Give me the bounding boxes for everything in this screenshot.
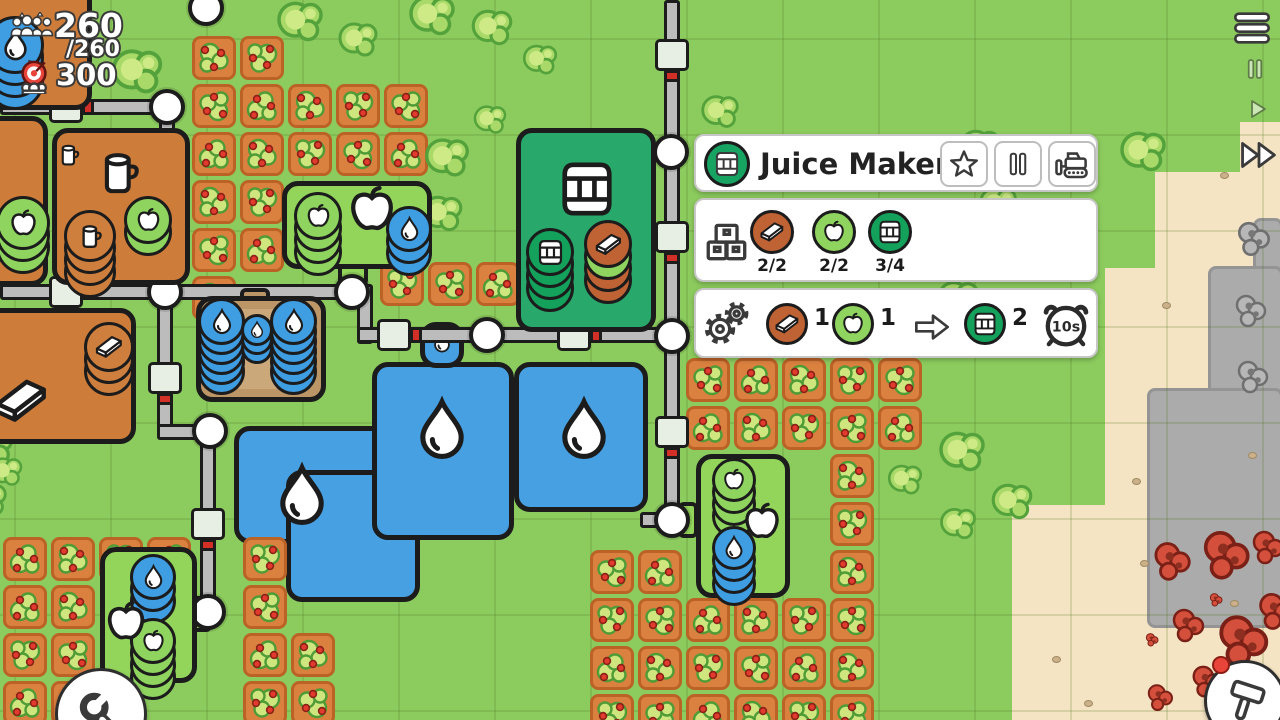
pebble — [1230, 600, 1239, 607]
rock-deposit — [1233, 358, 1273, 398]
orchard-tile — [291, 633, 335, 677]
orchard-tile — [243, 585, 287, 629]
pause-speed-button[interactable] — [1242, 56, 1268, 82]
barrel-icon — [554, 156, 620, 222]
pipe-node[interactable] — [654, 318, 690, 354]
orchard-tile — [830, 550, 874, 594]
pipe-connector[interactable] — [377, 319, 411, 351]
orchard-tile — [51, 585, 95, 629]
resource-stack-apple — [124, 196, 172, 244]
orchard-tile — [830, 358, 874, 402]
orchard-tile — [878, 358, 922, 402]
orchard-tile — [288, 132, 332, 176]
orchard-tile — [782, 406, 826, 450]
barrel-output-qty: 2 — [1012, 305, 1028, 331]
orchard-tile — [3, 537, 47, 581]
gears-icon — [702, 299, 750, 347]
resource-stack-plank — [584, 220, 632, 268]
rock-deposit — [1233, 219, 1275, 261]
apple-icon — [342, 180, 402, 240]
orchard-tile — [240, 84, 284, 128]
crates-icon — [702, 216, 752, 266]
orchard-tile — [428, 262, 472, 306]
target-icon — [16, 58, 52, 94]
bush — [934, 424, 990, 480]
plank-input-icon — [766, 303, 808, 345]
apple-icon — [738, 498, 786, 546]
orchard-tile — [734, 358, 778, 402]
ore-deposit — [1254, 590, 1280, 634]
valve-indicator — [157, 393, 173, 405]
valve-indicator — [664, 447, 680, 459]
orchard-tile — [243, 537, 287, 581]
orchard-tile — [192, 36, 236, 80]
orchard-tile — [638, 694, 682, 720]
menu-button[interactable] — [1232, 8, 1272, 48]
arrow-right-icon — [912, 307, 952, 347]
pipe-node[interactable] — [188, 0, 224, 26]
demolish-button[interactable] — [1048, 141, 1096, 187]
pebble — [1220, 172, 1229, 179]
panel-recipe: 1 1 2 10s — [694, 288, 1098, 358]
population-icon — [10, 12, 56, 42]
pebble — [1248, 452, 1257, 459]
fast-forward-button[interactable] — [1238, 134, 1280, 176]
apple-input-icon — [832, 303, 874, 345]
pipe-node[interactable] — [654, 502, 690, 538]
bush — [467, 3, 517, 53]
valve-indicator — [200, 539, 216, 551]
orchard-tile — [384, 84, 428, 128]
pipe-node[interactable] — [149, 89, 185, 125]
orchard-tile — [638, 550, 682, 594]
bush — [884, 459, 926, 501]
orchard-tile — [830, 598, 874, 642]
pipe-connector[interactable] — [191, 508, 225, 540]
ore-deposit — [1208, 592, 1224, 608]
rock-deposit — [1231, 292, 1271, 332]
ore-deposit — [1168, 606, 1208, 646]
orchard-tile — [782, 694, 826, 720]
bush — [1115, 124, 1171, 180]
recipe-time: 10s — [1040, 298, 1092, 350]
orchard-tile — [3, 585, 47, 629]
orchard-tile — [734, 694, 778, 720]
bush — [470, 100, 510, 140]
pipe-connector[interactable] — [655, 416, 689, 448]
plank-icon — [0, 370, 52, 432]
wrench-icon — [77, 690, 125, 720]
pebble — [1162, 302, 1171, 309]
svg-text:10s: 10s — [1052, 319, 1080, 335]
resource-stack-apple — [294, 192, 342, 240]
plank-count: 2/2 — [750, 256, 794, 276]
droplet-icon — [266, 460, 338, 532]
bush — [404, 0, 460, 44]
orchard-tile — [240, 180, 284, 224]
orchard-tile — [590, 646, 634, 690]
pebble — [1140, 560, 1149, 567]
orchard-tile — [638, 598, 682, 642]
orchard-tile — [878, 406, 922, 450]
pipe-connector[interactable] — [655, 221, 689, 253]
bush — [987, 477, 1037, 527]
star-icon — [948, 148, 980, 180]
barrel-output-icon — [964, 303, 1006, 345]
panel-storage: 2/2 2/2 3/4 — [694, 198, 1098, 282]
bush — [0, 452, 26, 492]
game-viewport: 260 /260 300 Juice Maker — [0, 0, 1280, 720]
orchard-tile — [686, 406, 730, 450]
play-icon — [1244, 96, 1270, 122]
panel-title: Juice Maker — [760, 136, 949, 190]
notification-badge — [1212, 656, 1230, 674]
favorite-button[interactable] — [940, 141, 988, 187]
orchard-tile — [336, 84, 380, 128]
mug-icon — [54, 140, 84, 170]
resource-stack-droplet — [270, 298, 317, 345]
orchard-tile — [192, 84, 236, 128]
orchard-tile — [830, 406, 874, 450]
bush — [420, 131, 474, 185]
bush — [936, 502, 980, 546]
valve-indicator — [664, 70, 680, 82]
resource-stack-apple — [712, 458, 756, 502]
droplet-icon — [406, 394, 478, 466]
pipe-connector[interactable] — [655, 39, 689, 71]
orchard-tile — [782, 598, 826, 642]
orchard-tile — [243, 681, 287, 720]
barrel-count: 3/4 — [868, 256, 912, 276]
resource-stack-droplet — [241, 314, 273, 346]
resource-stack-mug — [64, 210, 116, 262]
orchard-tile — [686, 358, 730, 402]
bulldozer-icon — [1053, 145, 1091, 183]
orchard-tile — [240, 228, 284, 272]
apple-input-qty: 1 — [880, 305, 896, 331]
plank-storage-icon — [750, 210, 794, 254]
resource-stack-droplet — [198, 298, 245, 345]
orchard-tile — [192, 132, 236, 176]
apple-count: 2/2 — [812, 256, 856, 276]
goal-count: 300 — [56, 58, 117, 92]
ore-deposit — [1149, 539, 1195, 585]
hammer-icon — [1220, 676, 1270, 720]
apple-icon — [100, 596, 152, 648]
orchard-tile — [830, 646, 874, 690]
hamburger-icon — [1232, 8, 1272, 48]
play-speed-button[interactable] — [1244, 96, 1270, 122]
pebble — [1052, 656, 1061, 663]
orchard-tile — [192, 180, 236, 224]
orchard-tile — [288, 84, 332, 128]
orchard-tile — [830, 454, 874, 498]
barrel-icon — [712, 149, 742, 179]
orchard-tile — [476, 262, 520, 306]
pebble — [1132, 478, 1141, 485]
orchard-tile — [243, 633, 287, 677]
orchard-tile — [782, 646, 826, 690]
orchard-tile — [590, 694, 634, 720]
valve-indicator — [410, 327, 422, 343]
pause-building-button[interactable] — [994, 141, 1042, 187]
orchard-tile — [240, 132, 284, 176]
pebble — [1084, 700, 1093, 707]
bush — [272, 0, 328, 50]
pipe-node[interactable] — [653, 134, 689, 170]
valve-indicator — [664, 252, 680, 264]
pipe-node[interactable] — [469, 317, 505, 353]
resource-stack-droplet — [130, 554, 176, 600]
barrel-storage-icon — [868, 210, 912, 254]
ore-deposit — [1144, 682, 1176, 714]
ore-deposit — [1248, 528, 1280, 568]
pipe-connector[interactable] — [148, 362, 182, 394]
orchard-tile — [590, 550, 634, 594]
pipe-node[interactable] — [192, 413, 228, 449]
orchard-tile — [638, 646, 682, 690]
bush — [697, 89, 743, 135]
bush — [519, 39, 561, 81]
bush — [334, 16, 382, 64]
orchard-tile — [51, 537, 95, 581]
orchard-tile — [830, 502, 874, 546]
ore-deposit — [1144, 632, 1160, 648]
orchard-tile — [336, 132, 380, 176]
orchard-tile — [3, 681, 47, 720]
resource-stack-barrel — [526, 228, 574, 276]
panel-header: Juice Maker — [694, 134, 1098, 192]
orchard-tile — [734, 406, 778, 450]
droplet-icon — [548, 394, 620, 466]
pause-icon — [1242, 56, 1268, 82]
juice-maker-badge — [704, 141, 750, 187]
fast-forward-icon — [1238, 134, 1280, 176]
apple-storage-icon — [812, 210, 856, 254]
plank-input-qty: 1 — [814, 305, 830, 331]
orchard-tile — [734, 646, 778, 690]
orchard-tile — [686, 598, 730, 642]
pause-icon — [1003, 149, 1033, 179]
mug-icon — [90, 144, 148, 202]
orchard-tile — [192, 228, 236, 272]
orchard-tile — [3, 633, 47, 677]
orchard-tile — [291, 681, 335, 720]
pipe-node[interactable] — [334, 274, 370, 310]
ore-deposit — [1197, 527, 1255, 585]
orchard-tile — [782, 358, 826, 402]
orchard-tile — [830, 694, 874, 720]
orchard-tile — [590, 598, 634, 642]
resource-stack-plank — [84, 322, 134, 372]
orchard-tile — [686, 694, 730, 720]
orchard-tile — [686, 646, 730, 690]
